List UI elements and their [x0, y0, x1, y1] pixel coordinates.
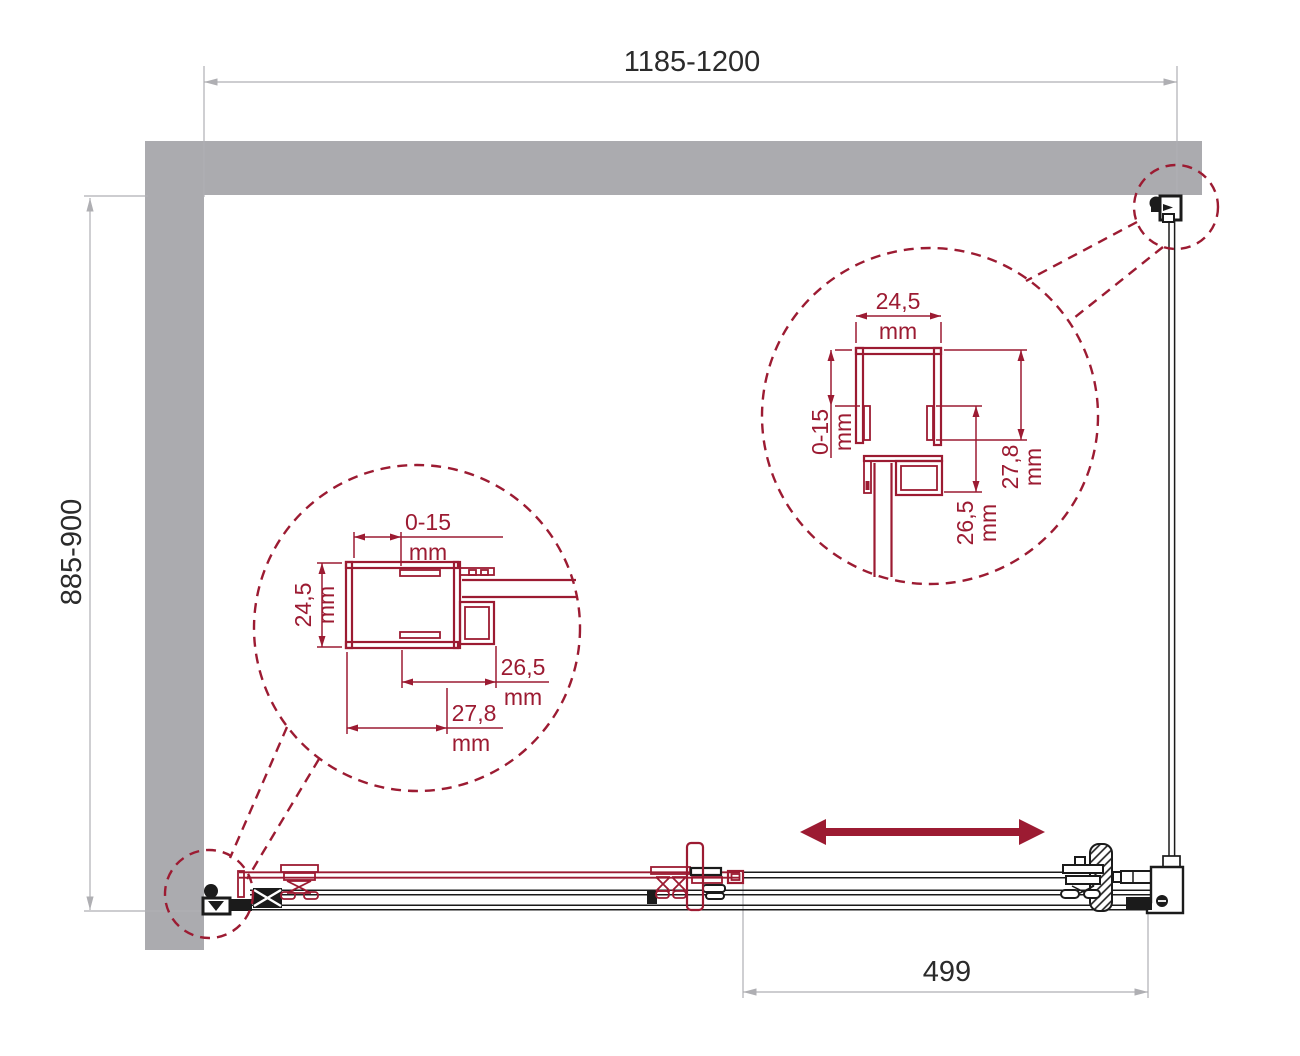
door-guide-block-left — [253, 888, 282, 908]
detail-label-adjustment-range-unit: mm — [409, 539, 447, 565]
guide-plate-black — [691, 868, 721, 875]
arrow-head-left — [800, 819, 826, 845]
dimension-label-top-width: 1185-1200 — [624, 46, 761, 78]
bracket-stem — [1121, 871, 1153, 883]
profile-clip — [866, 481, 870, 490]
profile-cap-notch — [469, 570, 476, 575]
profile-wall-plate — [346, 562, 352, 648]
fixed-panel-right-glass — [1163, 220, 1180, 869]
profile-glass-hook — [400, 632, 440, 638]
profile-glass-hook — [864, 406, 870, 440]
detail-dim-depth-inner: 26,5 mm — [936, 406, 1001, 545]
arrow-head-right — [1019, 819, 1045, 845]
enclosure-plan — [203, 196, 1183, 914]
slide-direction-arrow-icon — [800, 819, 1045, 845]
detail-label-profile-width-unit: mm — [313, 586, 339, 624]
wall-top — [145, 141, 1202, 195]
detail-callouts — [165, 165, 1218, 938]
callout-leader — [247, 759, 319, 879]
guide-bowtie — [656, 877, 670, 891]
detail-drawing-center-left: 0-15 mm 24,5 mm 26,5 mm 27,8 mm — [290, 509, 576, 756]
roller-plate — [1066, 876, 1100, 884]
detail-label-depth-outer-unit: mm — [452, 730, 490, 756]
detail-drawing-top-right: 24,5 mm 0-15 mm 27,8 mm 26,5 mm — [807, 288, 1046, 577]
detail-dim-depth-outer: 27,8 mm — [936, 350, 1046, 489]
roller-foot — [1084, 890, 1100, 898]
profile-lower-box-inner — [465, 607, 489, 639]
sliding-door-glass — [238, 871, 743, 897]
detail-dim-profile-width: 24,5 mm — [290, 563, 342, 647]
bracket-block — [231, 899, 252, 911]
detail-label-depth-outer: 27,8 — [452, 700, 497, 726]
callout-leader — [230, 727, 287, 858]
profile-glass-hook — [400, 570, 440, 576]
detail-dim-adjustment-range: 0-15 mm — [354, 509, 503, 566]
wall-left — [145, 141, 204, 950]
detail-label-adjustment-range-unit: mm — [830, 413, 856, 451]
detail-label-depth-inner-unit: mm — [504, 684, 542, 710]
profile-top-plate — [856, 348, 941, 354]
wall-bracket-top-right — [1150, 196, 1182, 222]
dimension-door-width: 499 — [743, 884, 1148, 998]
profile-wall-right — [934, 348, 941, 445]
profile-cap-notch — [481, 570, 488, 575]
roller-foot — [1061, 890, 1079, 898]
guide-foot-black — [703, 885, 725, 892]
profile-wall-left — [856, 348, 863, 443]
detail-label-profile-width: 24,5 — [876, 288, 921, 314]
walls — [145, 141, 1202, 950]
callout-leader — [1026, 222, 1137, 281]
profile-glass-hook — [927, 406, 933, 440]
guide-bowtie — [672, 877, 686, 891]
dimension-label-left-depth: 885-900 — [56, 499, 88, 605]
detail-label-depth-outer-unit: mm — [1020, 448, 1046, 486]
roller-plate — [1063, 865, 1103, 873]
door-edge-profile — [238, 871, 244, 897]
detail-label-depth-inner-unit: mm — [975, 504, 1001, 542]
profile-lower-box-inner — [901, 466, 937, 490]
detail-label-profile-width-unit: mm — [879, 318, 917, 344]
roller-plate — [281, 865, 318, 872]
guide-foot-black — [706, 893, 724, 899]
roller-plate — [284, 873, 315, 880]
detail-dim-depth-outer: 27,8 mm — [347, 652, 503, 756]
bracket-block — [1126, 897, 1152, 910]
center-guide-assembly — [647, 843, 725, 910]
detail-dim-adjustment-range: 0-15 mm — [807, 350, 860, 458]
shower-enclosure-plan-drawing: 1185-1200 885-900 499 — [0, 0, 1300, 1056]
door-roller-left — [281, 865, 318, 899]
roller-cap — [1075, 857, 1085, 865]
bracket-knob — [204, 884, 218, 898]
bracket-foot — [1163, 214, 1174, 222]
detail-dim-profile-width: 24,5 mm — [856, 288, 941, 344]
roller-right — [1061, 844, 1112, 911]
detail-label-adjustment-range: 0-15 — [405, 509, 451, 535]
detail-label-depth-inner: 26,5 — [501, 654, 546, 680]
dimension-label-door-width: 499 — [923, 956, 971, 988]
profile-wall-bottom — [346, 642, 458, 648]
callout-leader — [1069, 247, 1163, 322]
drawing-canvas: 1185-1200 885-900 499 — [0, 0, 1300, 1056]
bracket-cap — [1113, 872, 1121, 882]
